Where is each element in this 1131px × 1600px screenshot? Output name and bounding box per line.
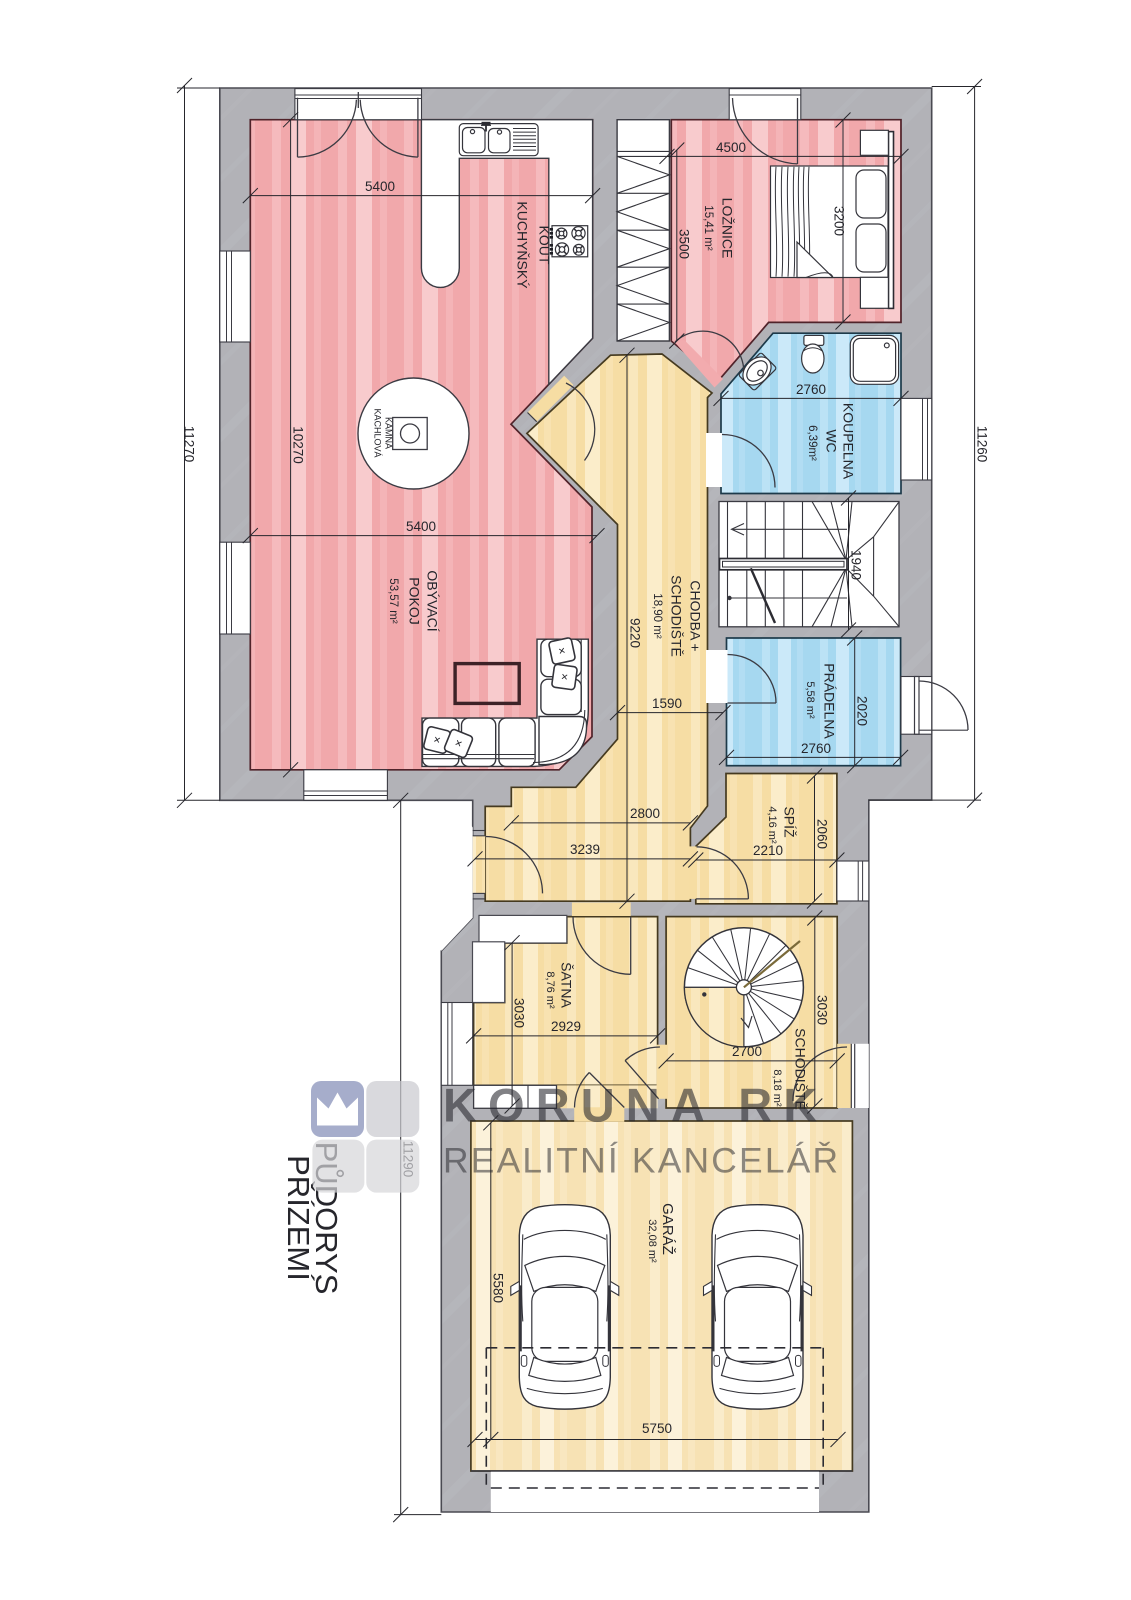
svg-text:CHODBA +: CHODBA + <box>687 580 703 651</box>
svg-text:53,57 m²: 53,57 m² <box>387 578 399 624</box>
svg-text:2760: 2760 <box>801 741 831 756</box>
svg-text:3200: 3200 <box>831 206 846 236</box>
svg-text:PŘÍZEMÍ: PŘÍZEMÍ <box>281 1155 316 1281</box>
svg-text:18,90 m²: 18,90 m² <box>651 593 663 639</box>
svg-text:KORUNA RK: KORUNA RK <box>443 1079 828 1132</box>
svg-text:15,41 m²: 15,41 m² <box>702 205 714 251</box>
svg-text:11270: 11270 <box>181 426 196 463</box>
svg-text:5750: 5750 <box>642 1421 672 1436</box>
svg-text:PRÁDELNA: PRÁDELNA <box>821 663 837 739</box>
svg-text:KAMNA: KAMNA <box>384 417 394 449</box>
svg-text:1590: 1590 <box>652 696 682 711</box>
svg-text:8,76 m²: 8,76 m² <box>544 971 556 1009</box>
svg-text:2800: 2800 <box>630 806 660 821</box>
svg-text:32,08 m²: 32,08 m² <box>646 1219 658 1263</box>
svg-text:9220: 9220 <box>627 618 642 648</box>
svg-text:3030: 3030 <box>814 995 829 1025</box>
svg-text:3239: 3239 <box>570 842 600 857</box>
svg-text:2929: 2929 <box>551 1019 581 1034</box>
svg-text:1940: 1940 <box>848 550 863 580</box>
svg-text:2760: 2760 <box>796 382 826 397</box>
svg-text:2700: 2700 <box>732 1044 762 1059</box>
svg-text:10270: 10270 <box>290 426 305 464</box>
svg-text:5,58 m²: 5,58 m² <box>804 681 816 719</box>
svg-text:2210: 2210 <box>753 843 783 858</box>
svg-text:3030: 3030 <box>511 998 526 1028</box>
svg-text:5400: 5400 <box>406 519 436 534</box>
svg-text:5400: 5400 <box>365 179 395 194</box>
svg-text:6,39m²: 6,39m² <box>806 425 818 461</box>
svg-text:2020: 2020 <box>854 696 869 726</box>
svg-text:SPÍŽ: SPÍŽ <box>781 806 797 838</box>
svg-text:LOŽNICE: LOŽNICE <box>719 198 735 259</box>
svg-text:4500: 4500 <box>716 140 746 155</box>
svg-text:11260: 11260 <box>974 426 989 463</box>
svg-text:KUCHYŇSKÝ: KUCHYŇSKÝ <box>514 201 530 289</box>
svg-text:OBÝVACÍ: OBÝVACÍ <box>424 570 440 631</box>
svg-text:✕: ✕ <box>560 672 569 683</box>
svg-text:3500: 3500 <box>676 229 691 259</box>
svg-text:KOUPELNA: KOUPELNA <box>840 403 856 480</box>
svg-text:ŠATNA: ŠATNA <box>558 962 574 1008</box>
svg-text:2060: 2060 <box>814 819 829 849</box>
svg-text:5580: 5580 <box>490 1273 505 1303</box>
svg-text:GARÁŽ: GARÁŽ <box>659 1203 676 1255</box>
svg-text:KOUT: KOUT <box>536 226 552 265</box>
svg-text:WC: WC <box>823 429 839 452</box>
svg-text:POKOJ: POKOJ <box>406 577 422 624</box>
svg-text:SCHODIŠTĚ: SCHODIŠTĚ <box>668 575 684 657</box>
svg-text:KACHLOVÁ: KACHLOVÁ <box>373 408 383 457</box>
svg-text:4,16 m²: 4,16 m² <box>766 806 778 844</box>
svg-text:REALITNÍ KANCELÁŘ: REALITNÍ KANCELÁŘ <box>443 1141 840 1181</box>
